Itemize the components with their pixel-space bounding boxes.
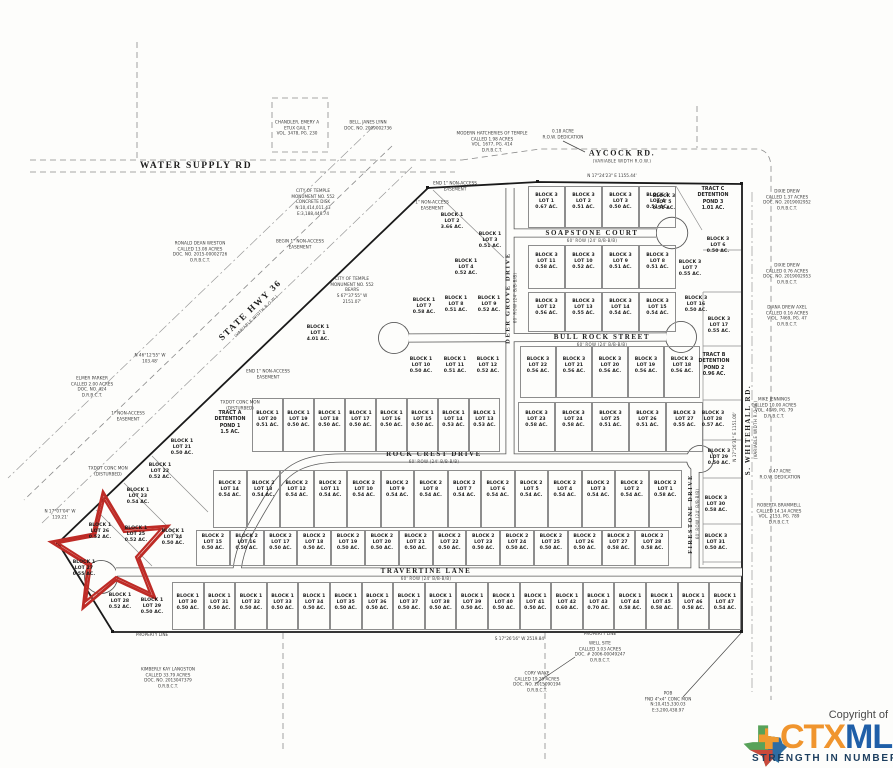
lot-label: BLOCK 3 LOT 9 0.51 AC. bbox=[609, 253, 632, 271]
street-label-travertine-lane: TRAVERTINE LANE 60' ROW (24' B/B-B/B) bbox=[381, 567, 472, 581]
lot-label: BLOCK 1 LOT 22 0.52 AC. bbox=[149, 463, 172, 481]
lot-label: BLOCK 2 LOT 19 0.50 AC. bbox=[337, 534, 360, 552]
tract-label: TRACT B DETENTION POND 2 0.96 AC. bbox=[699, 353, 730, 379]
street-row-note: (VARIABLE WIDTH R.O.W.) bbox=[589, 159, 655, 164]
lot-cell bbox=[213, 470, 247, 528]
lot-label: BLOCK 1 LOT 10 0.50 AC. bbox=[410, 357, 433, 375]
street-row-note: 60' ROW (24' B/B-B/B) bbox=[545, 238, 638, 243]
lot-label: BLOCK 1 LOT 44 0.58 AC. bbox=[619, 594, 642, 612]
lot-label: BLOCK 3 LOT 8 0.51 AC. bbox=[646, 253, 669, 271]
street-label-aycock-rd: AYCOCK RD. (VARIABLE WIDTH R.O.W.) bbox=[589, 149, 655, 164]
lot-label: BLOCK 2 LOT 27 0.58 AC. bbox=[607, 534, 630, 552]
lot-cell bbox=[448, 470, 482, 528]
plat-note: DIANA DREW AXEL CALLED 0.16 ACRES V OL. … bbox=[766, 305, 808, 328]
tract-label: TRACT C DETENTION POND 3 1.01 AC. bbox=[698, 187, 729, 213]
lot-label: BLOCK 3 LOT 3 0.50 AC. bbox=[609, 193, 632, 211]
lot-label: BLOCK 3 LOT 16 0.50 AC. bbox=[685, 296, 708, 314]
lot-label: BLOCK 1 LOT 29 0.50 AC. bbox=[141, 598, 164, 616]
lot-label: BLOCK 2 LOT 21 0.50 AC. bbox=[404, 534, 427, 552]
lot-label: BLOCK 1 LOT 34 0.50 AC. bbox=[303, 594, 326, 612]
street-row-note: 60' ROW (24' B/B-B/B) bbox=[513, 252, 518, 344]
plat-note: CORY WAKE CALLED 19.29 ACRES DOC. NO. 20… bbox=[513, 671, 561, 694]
lot-label: BLOCK 2 LOT 2 0.54 AC. bbox=[620, 481, 643, 499]
street-name: FIRESTONE DRIVE bbox=[688, 474, 694, 553]
lot-label: BLOCK 1 LOT 18 0.50 AC. bbox=[318, 411, 341, 429]
street-label-rock-crest-drive: ROCK CREST DRIVE 60' ROW (24' B/B-B/B) bbox=[386, 450, 482, 464]
plat-note: CITY OF TEMPLE MONUMENT NO. 552 BEARS S … bbox=[330, 276, 373, 304]
lot-label: BLOCK 3 LOT 28 0.57 AC. bbox=[702, 411, 725, 429]
plat-map-canvas: WATER SUPPLY RD AYCOCK RD. (VARIABLE WID… bbox=[0, 0, 893, 768]
street-label-firestone-drive: FIRESTONE DRIVE 60' ROW (24' B/B-B/B) bbox=[688, 474, 700, 553]
plat-note: N 17°26'31" E 1151.00' bbox=[732, 412, 738, 461]
lot-label: BLOCK 2 LOT 13 0.54 AC. bbox=[252, 481, 275, 499]
plat-note: S 17°26'16" W 2519.84' bbox=[495, 636, 545, 642]
plat-note: BEGIN 1" NON-ACCESS EASEMENT bbox=[276, 238, 324, 249]
lot-label: BLOCK 3 LOT 6 0.50 AC. bbox=[707, 237, 730, 255]
lot-label: BLOCK 1 LOT 14 0.53 AC. bbox=[442, 411, 465, 429]
lot-label: BLOCK 1 LOT 33 0.50 AC. bbox=[271, 594, 294, 612]
lot-label: BLOCK 2 LOT 3 0.54 AC. bbox=[587, 481, 610, 499]
lot-label: BLOCK 3 LOT 14 0.54 AC. bbox=[609, 299, 632, 317]
lot-label: BLOCK 1 LOT 4 0.52 AC. bbox=[455, 259, 478, 277]
lot-label: BLOCK 1 LOT 13 0.53 AC. bbox=[473, 411, 496, 429]
plat-note: TXDOT CONC MON (DISTURBED) bbox=[88, 465, 128, 476]
lot-label: BLOCK 2 LOT 9 0.54 AC. bbox=[386, 481, 409, 499]
lot-label: BLOCK 3 LOT 23 0.58 AC. bbox=[525, 411, 548, 429]
lot-label: BLOCK 1 LOT 25 0.52 AC. bbox=[125, 526, 148, 544]
lot-label: BLOCK 2 LOT 12 0.54 AC. bbox=[285, 481, 308, 499]
lot-label: BLOCK 2 LOT 10 0.54 AC. bbox=[352, 481, 375, 499]
lot-label: BLOCK 1 LOT 24 0.50 AC. bbox=[162, 529, 185, 547]
lot-label: BLOCK 1 LOT 8 0.51 AC. bbox=[445, 296, 468, 314]
lot-label: BLOCK 1 LOT 37 0.50 AC. bbox=[398, 594, 421, 612]
plat-note: BELL, JANES LYNN DOC. NO. 2009002736 bbox=[344, 119, 392, 130]
lot-label: BLOCK 3 LOT 31 0.50 AC. bbox=[705, 534, 728, 552]
lot-label: BLOCK 2 LOT 5 0.54 AC. bbox=[520, 481, 543, 499]
lot-label: BLOCK 2 LOT 11 0.54 AC. bbox=[319, 481, 342, 499]
plat-note: MIKE JENNINGS CALLED 10.00 ACRES VOL. 40… bbox=[752, 397, 797, 420]
plat-note: 0.18 ACRE R.O.W. DEDICATION bbox=[543, 128, 584, 139]
lot-label: BLOCK 2 LOT 23 0.50 AC. bbox=[472, 534, 495, 552]
lot-label: BLOCK 1 LOT 35 0.50 AC. bbox=[334, 594, 357, 612]
lot-label: BLOCK 2 LOT 7 0.54 AC. bbox=[453, 481, 476, 499]
street-row-note: 60' ROW (24' B/B-B/B) bbox=[386, 459, 482, 464]
lot-label: BLOCK 3 LOT 29 0.50 AC. bbox=[708, 449, 731, 467]
street-row-note: 60' ROW (24' B/B-B/B) bbox=[381, 576, 472, 581]
lot-label: BLOCK 1 LOT 28 0.52 AC. bbox=[109, 593, 132, 611]
lot-label: BLOCK 1 LOT 21 0.50 AC. bbox=[171, 439, 194, 457]
lot-label: BLOCK 1 LOT 2 3.66 AC. bbox=[441, 213, 464, 231]
brand-tagline: STRENGTH IN NUMBERS bbox=[752, 753, 893, 764]
lot-label: BLOCK 2 LOT 8 0.54 AC. bbox=[419, 481, 442, 499]
lot-cell bbox=[347, 470, 381, 528]
lot-label: BLOCK 3 LOT 21 0.56 AC. bbox=[563, 357, 586, 375]
lot-label: BLOCK 3 LOT 27 0.55 AC. bbox=[673, 411, 696, 429]
plat-note: PROPERTY LINE bbox=[584, 631, 616, 637]
street-name: BULL ROCK STREET bbox=[554, 333, 650, 341]
lot-label: BLOCK 1 LOT 27 0.55 AC. bbox=[73, 560, 96, 578]
lot-label: BLOCK 1 LOT 38 0.50 AC. bbox=[429, 594, 452, 612]
lot-label: BLOCK 3 LOT 11 0.58 AC. bbox=[535, 253, 558, 271]
lot-label: BLOCK 1 LOT 39 0.50 AC. bbox=[461, 594, 484, 612]
plat-note: CHANDLER, EMERY A ETUX GAIL T VOL. 3478,… bbox=[275, 119, 319, 136]
tract-label: TRACT A DETENTION POND 1 1.5 AC. bbox=[215, 411, 246, 437]
lot-label: BLOCK 1 LOT 41 0.50 AC. bbox=[524, 594, 547, 612]
lot-label: BLOCK 2 LOT 15 0.50 AC. bbox=[202, 534, 225, 552]
plat-note: END 1" NON-ACCESS EASEMENT bbox=[246, 368, 290, 379]
plat-note: RONALD DEAN WESTON CALLED 13.08 ACRES DO… bbox=[173, 241, 228, 264]
lot-label: BLOCK 1 LOT 47 0.54 AC. bbox=[714, 594, 737, 612]
street-row-note: 60' ROW (24' B/B-B/B) bbox=[695, 474, 700, 553]
lot-label: BLOCK 3 LOT 26 0.51 AC. bbox=[636, 411, 659, 429]
lot-label: BLOCK 3 LOT 19 0.56 AC. bbox=[635, 357, 658, 375]
plat-note: N 17°24'23" E 1155.44' bbox=[587, 173, 636, 179]
street-name: DEER GROVE DRIVE bbox=[505, 252, 512, 344]
lot-label: BLOCK 3 LOT 24 0.58 AC. bbox=[562, 411, 585, 429]
lot-label: BLOCK 1 LOT 9 0.52 AC. bbox=[478, 296, 501, 314]
lot-label: BLOCK 3 LOT 12 0.56 AC. bbox=[535, 299, 558, 317]
lot-label: BLOCK 1 LOT 42 0.60 AC. bbox=[556, 594, 579, 612]
lot-label: BLOCK 1 LOT 7 0.58 AC. bbox=[413, 298, 436, 316]
lot-label: BLOCK 3 LOT 10 0.52 AC. bbox=[572, 253, 595, 271]
plat-note: POB FND 4"x4" CONC MON N:10,415,330.03 E… bbox=[645, 691, 692, 714]
lot-label: BLOCK 2 LOT 28 0.58 AC. bbox=[641, 534, 664, 552]
plat-note: 1" NON-ACCESS EASEMENT bbox=[415, 199, 449, 210]
lot-cell bbox=[247, 470, 281, 528]
lot-cell bbox=[615, 470, 649, 528]
lot-label: BLOCK 2 LOT 22 0.50 AC. bbox=[438, 534, 461, 552]
lot-label: BLOCK 1 LOT 43 0.70 AC. bbox=[587, 594, 610, 612]
lot-label: BLOCK 3 LOT 25 0.51 AC. bbox=[599, 411, 622, 429]
lot-cell bbox=[649, 470, 683, 528]
lot-label: BLOCK 1 LOT 19 0.50 AC. bbox=[287, 411, 310, 429]
brand-mls: MLS bbox=[845, 718, 893, 756]
lot-label: BLOCK 1 LOT 40 0.50 AC. bbox=[492, 594, 515, 612]
plat-note: ROBERTA BRAMMELL CALLED 14.14 ACRES VOL.… bbox=[757, 503, 802, 526]
plat-note: MODERN HATCHERIES OF TEMPLE CALLED 1.98 … bbox=[456, 131, 527, 154]
street-label-water-supply-rd: WATER SUPPLY RD bbox=[140, 161, 252, 171]
lot-cell bbox=[515, 470, 549, 528]
lot-label: BLOCK 1 LOT 16 0.50 AC. bbox=[380, 411, 403, 429]
lot-cell bbox=[414, 470, 448, 528]
lot-label: BLOCK 1 LOT 46 0.58 AC. bbox=[682, 594, 705, 612]
lot-cell bbox=[548, 470, 582, 528]
lot-label: BLOCK 3 LOT 15 0.54 AC. bbox=[646, 299, 669, 317]
lot-label: BLOCK 2 LOT 14 0.54 AC. bbox=[218, 481, 241, 499]
lot-label: BLOCK 2 LOT 18 0.50 AC. bbox=[303, 534, 326, 552]
lot-cell bbox=[582, 470, 616, 528]
lot-cell bbox=[280, 470, 314, 528]
lot-cell bbox=[314, 470, 348, 528]
lot-label: BLOCK 3 LOT 2 0.51 AC. bbox=[572, 193, 595, 211]
lot-label: BLOCK 3 LOT 18 0.56 AC. bbox=[671, 357, 694, 375]
lot-label: BLOCK 1 LOT 3 0.51 AC. bbox=[479, 232, 502, 250]
street-label-deer-grove-drive: DEER GROVE DRIVE 60' ROW (24' B/B-B/B) bbox=[505, 252, 518, 344]
lot-label: BLOCK 2 LOT 26 0.50 AC. bbox=[573, 534, 596, 552]
street-label-bull-rock-street: BULL ROCK STREET 60' ROW (24' B/B-B/B) bbox=[554, 333, 650, 347]
street-name: AYCOCK RD. bbox=[589, 149, 655, 158]
street-name: TRAVERTINE LANE bbox=[381, 567, 472, 575]
lot-label: BLOCK 2 LOT 17 0.50 AC. bbox=[269, 534, 292, 552]
lot-label: BLOCK 3 LOT 22 0.56 AC. bbox=[527, 357, 550, 375]
lot-label: BLOCK 1 LOT 1 4.01 AC. bbox=[307, 325, 330, 343]
lot-label: BLOCK 2 LOT 24 0.50 AC. bbox=[506, 534, 529, 552]
lot-label: BLOCK 1 LOT 45 0.58 AC. bbox=[650, 594, 673, 612]
plat-drawing bbox=[0, 0, 893, 768]
plat-note: N 46°12'55" W 103.48' bbox=[134, 352, 165, 363]
lot-label: BLOCK 2 LOT 25 0.50 AC. bbox=[540, 534, 563, 552]
lot-label: BLOCK 1 LOT 26 0.52 AC. bbox=[89, 523, 112, 541]
lot-cell bbox=[381, 470, 415, 528]
lot-label: BLOCK 1 LOT 20 0.51 AC. bbox=[256, 411, 279, 429]
lot-label: BLOCK 3 LOT 17 0.55 AC. bbox=[708, 317, 731, 335]
lot-label: BLOCK 3 LOT 1 0.67 AC. bbox=[535, 193, 558, 211]
plat-note: TXDOT CONC MON (DISTURBED) bbox=[220, 399, 260, 410]
street-label-soapstone-court: SOAPSTONE COURT 60' ROW (24' B/B-B/B) bbox=[545, 229, 638, 243]
street-name: SOAPSTONE COURT bbox=[545, 229, 638, 237]
lot-label: BLOCK 3 LOT 20 0.56 AC. bbox=[599, 357, 622, 375]
lot-label: BLOCK 1 LOT 11 0.51 AC. bbox=[444, 357, 467, 375]
lot-label: BLOCK 2 LOT 6 0.54 AC. bbox=[486, 481, 509, 499]
plat-note: 0.47 ACRE R.O.W. DEDICATION bbox=[760, 468, 801, 479]
lot-label: BLOCK 2 LOT 1 0.58 AC. bbox=[654, 481, 677, 499]
lot-label: BLOCK 1 LOT 30 0.50 AC. bbox=[176, 594, 199, 612]
plat-note: END 1" NON-ACCESS EASEMENT bbox=[433, 180, 477, 191]
lot-label: BLOCK 3 LOT 5 0.51 AC. bbox=[653, 194, 676, 212]
street-name: WATER SUPPLY RD bbox=[140, 161, 252, 171]
lot-label: BLOCK 1 LOT 23 0.54 AC. bbox=[127, 488, 150, 506]
plat-note: DIXIE DREW CALLED 1.37 ACRES DOC. NO. 20… bbox=[763, 189, 811, 212]
brand-wordmark: CTXMLS bbox=[780, 720, 893, 754]
lot-label: BLOCK 1 LOT 31 0.50 AC. bbox=[208, 594, 231, 612]
plat-note: N 17°07'04" W 119.21' bbox=[44, 508, 75, 519]
lot-cell bbox=[481, 470, 515, 528]
lot-label: BLOCK 1 LOT 12 0.52 AC. bbox=[477, 357, 500, 375]
plat-note: DIXIE DREW CALLED 0.76 ACRES DOC. NO. 20… bbox=[763, 263, 811, 286]
lot-label: BLOCK 1 LOT 17 0.50 AC. bbox=[349, 411, 372, 429]
lot-label: BLOCK 1 LOT 32 0.50 AC. bbox=[240, 594, 263, 612]
plat-note: WELL SITE CALLED 3.03 ACRES DOC. # 2006-… bbox=[575, 641, 625, 664]
plat-note: ELMER PARKER CALLED 2.00 ACRES DOC. NO. … bbox=[71, 376, 113, 399]
lot-label: BLOCK 1 LOT 36 0.50 AC. bbox=[366, 594, 389, 612]
plat-note: PROPERTY LINE bbox=[136, 632, 168, 638]
brand-ctx: CTX bbox=[780, 718, 845, 756]
lot-label: BLOCK 2 LOT 16 0.50 AC. bbox=[235, 534, 258, 552]
plat-note: KIMBERLY KAY LANGSTON CALLED 33.79 ACRES… bbox=[141, 667, 195, 690]
lot-label: BLOCK 3 LOT 7 0.55 AC. bbox=[679, 260, 702, 278]
lot-label: BLOCK 3 LOT 30 0.58 AC. bbox=[705, 496, 728, 514]
lot-label: BLOCK 3 LOT 13 0.55 AC. bbox=[572, 299, 595, 317]
lot-label: BLOCK 2 LOT 4 0.54 AC. bbox=[553, 481, 576, 499]
plat-note: CITY OF TEMPLE MONUMENT NO. 552 CONCRETE… bbox=[291, 188, 334, 216]
lot-label: BLOCK 1 LOT 15 0.50 AC. bbox=[411, 411, 434, 429]
plat-note: 1" NON-ACCESS EASEMENT bbox=[111, 410, 145, 421]
lot-label: BLOCK 2 LOT 20 0.50 AC. bbox=[371, 534, 394, 552]
ctxmls-watermark: Copyright of CTXMLS STRENGTH IN NUMBERS bbox=[628, 705, 893, 768]
